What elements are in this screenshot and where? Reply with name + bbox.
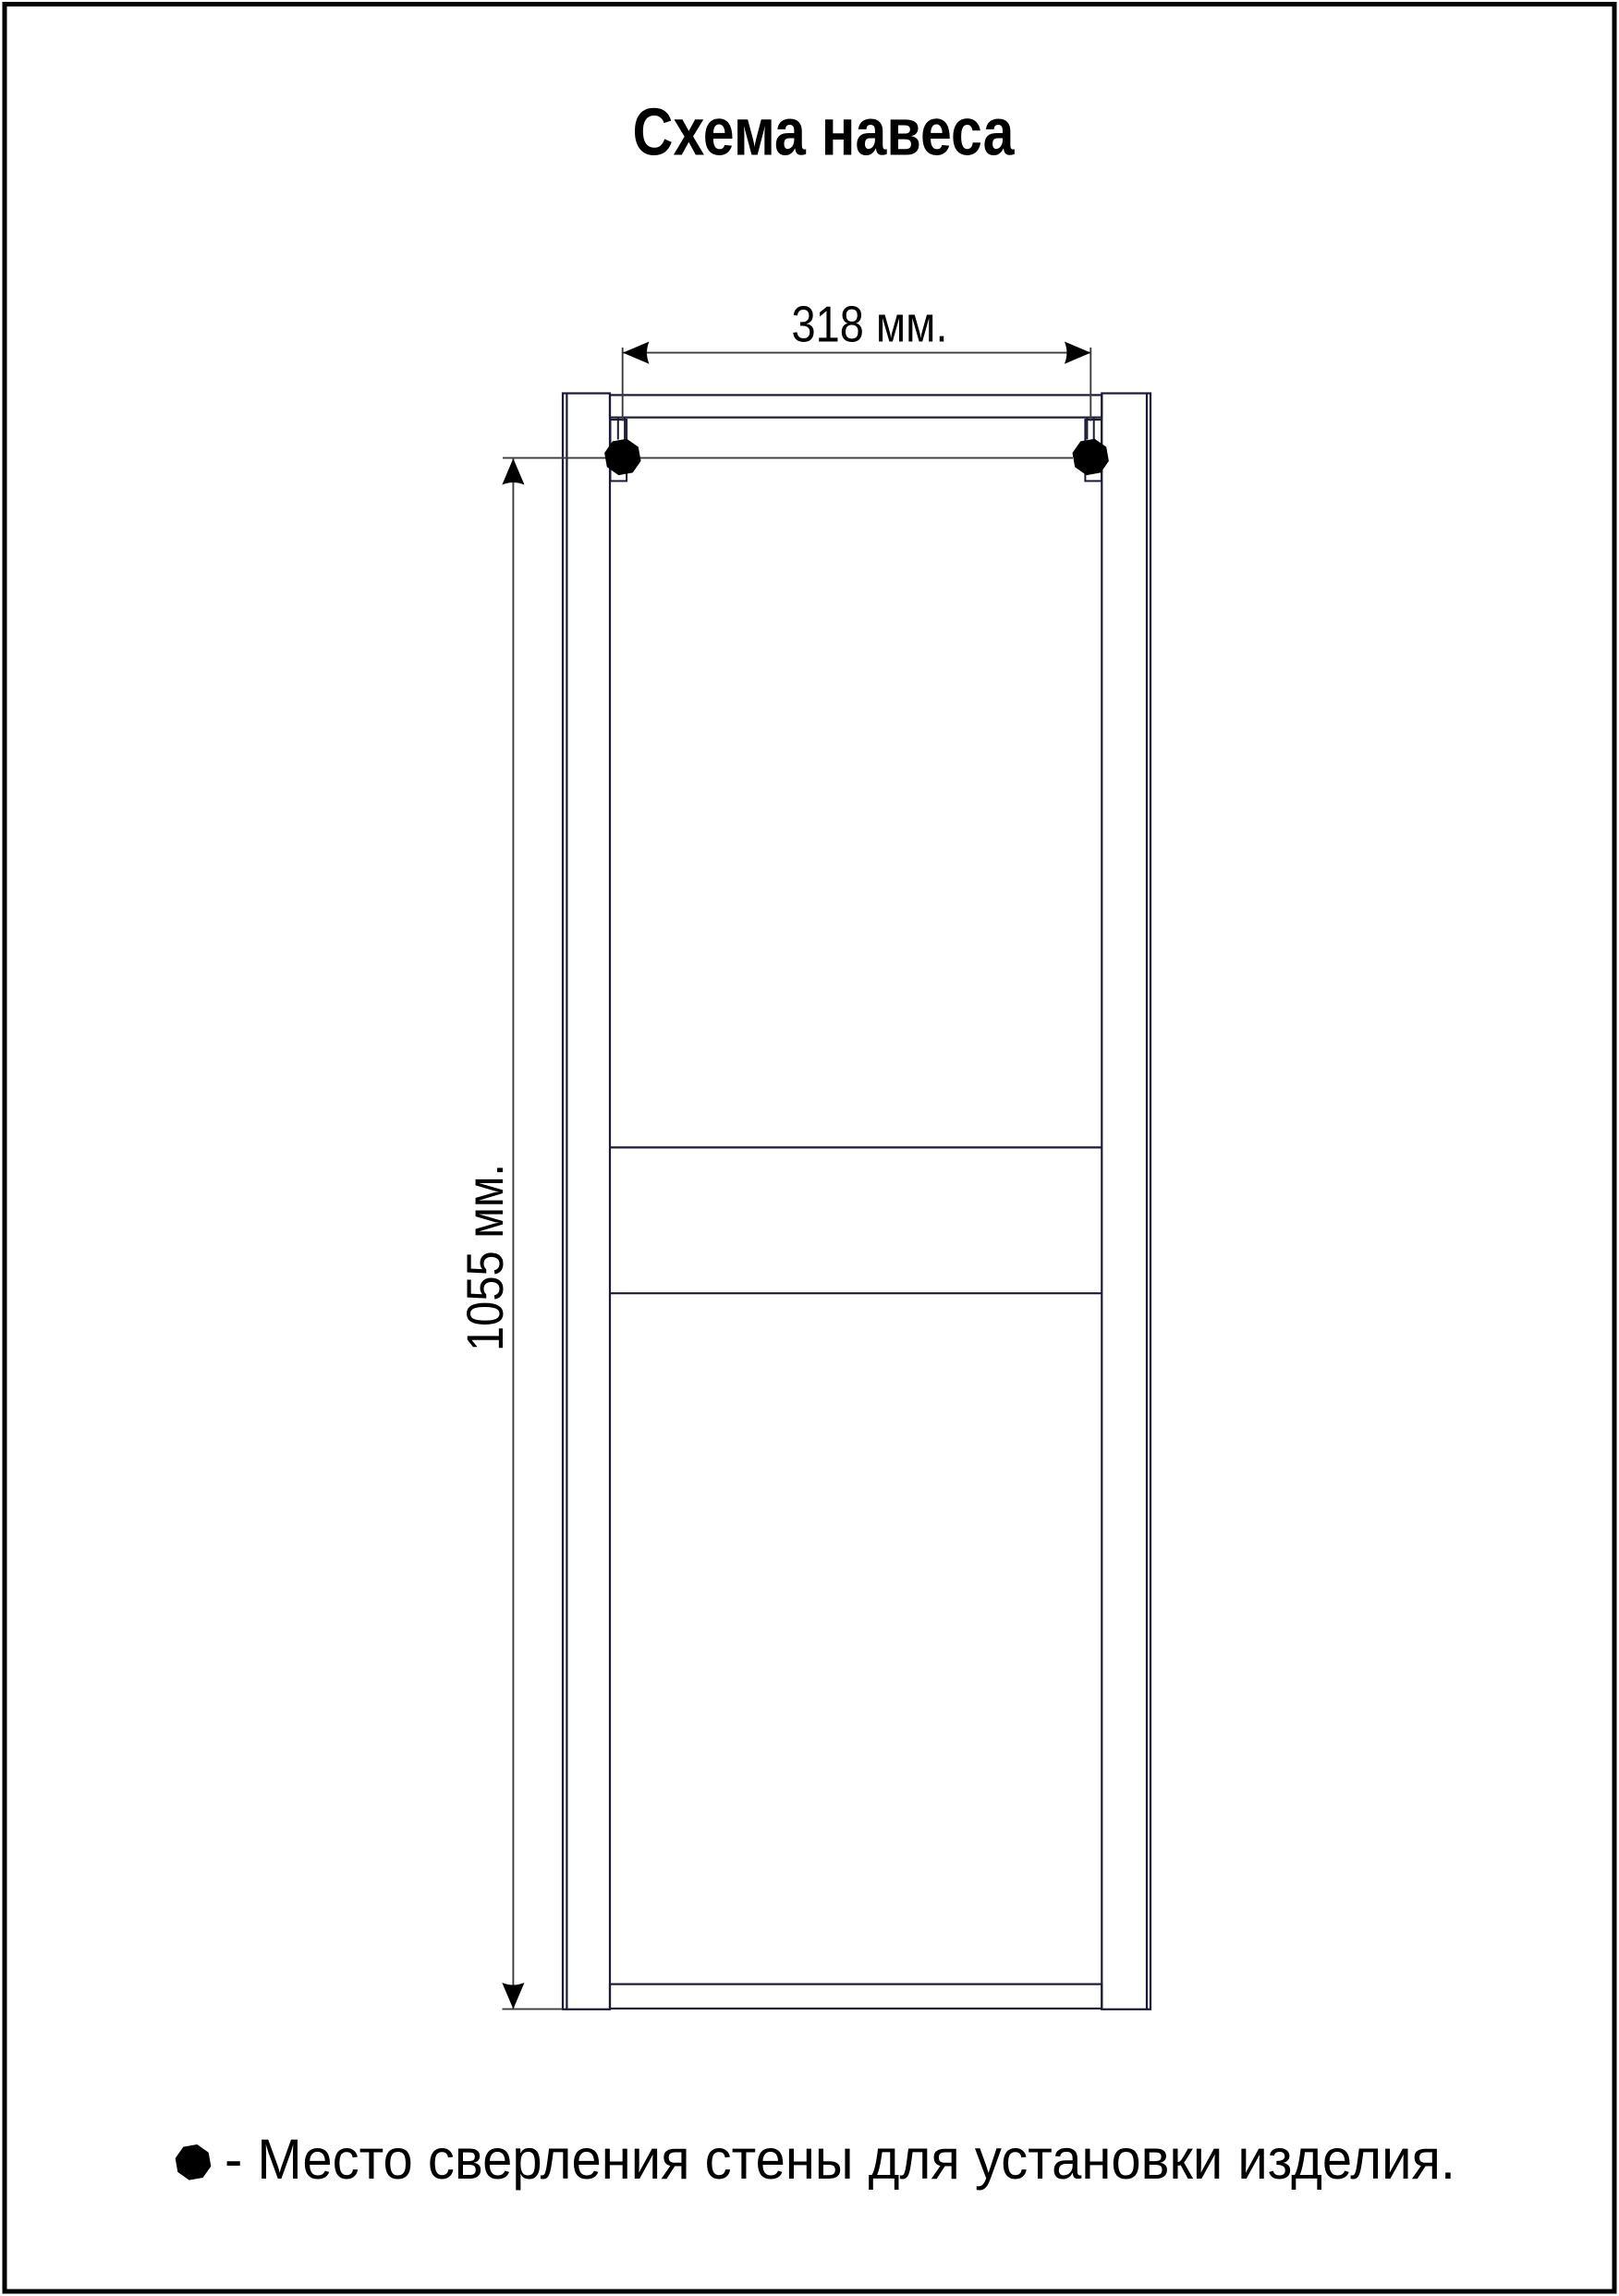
svg-text:1055 мм.: 1055 мм. [456,1164,514,1351]
svg-text:Схема навеса: Схема навеса [633,95,1016,169]
svg-text:- Место сверления стены для ус: - Место сверления стены для установки из… [225,2128,1455,2191]
svg-text:318 мм.: 318 мм. [792,296,948,353]
